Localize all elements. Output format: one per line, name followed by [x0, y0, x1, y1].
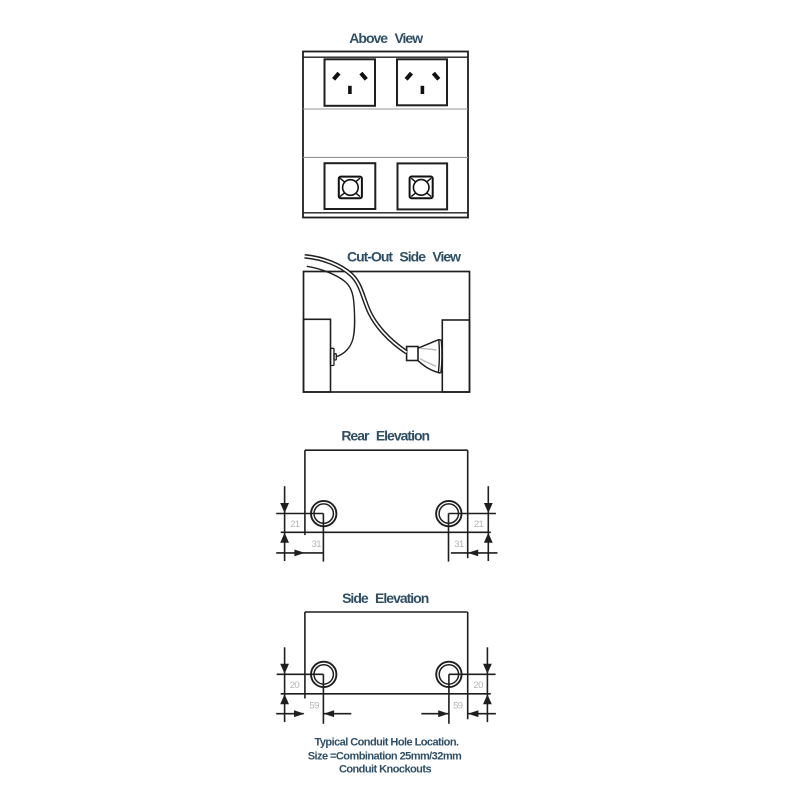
svg-text:59: 59 [309, 700, 319, 711]
svg-text:Above View: Above View [349, 30, 423, 46]
svg-text:Rear Elevation: Rear Elevation [341, 427, 429, 443]
svg-text:Conduit Knockouts: Conduit Knockouts [339, 764, 432, 776]
svg-text:31: 31 [312, 539, 322, 550]
svg-text:59: 59 [453, 700, 463, 711]
svg-text:Size =Combination 25mm/32mm: Size =Combination 25mm/32mm [308, 751, 462, 763]
svg-text:Cut-Out Side View: Cut-Out Side View [347, 249, 461, 265]
svg-text:Typical Conduit Hole Location.: Typical Conduit Hole Location. [314, 737, 459, 749]
svg-text:21: 21 [290, 519, 300, 530]
svg-text:31: 31 [454, 539, 464, 550]
svg-text:20: 20 [473, 680, 483, 691]
svg-text:Side Elevation: Side Elevation [342, 590, 429, 606]
svg-text:21: 21 [474, 519, 484, 530]
svg-text:20: 20 [290, 680, 300, 691]
